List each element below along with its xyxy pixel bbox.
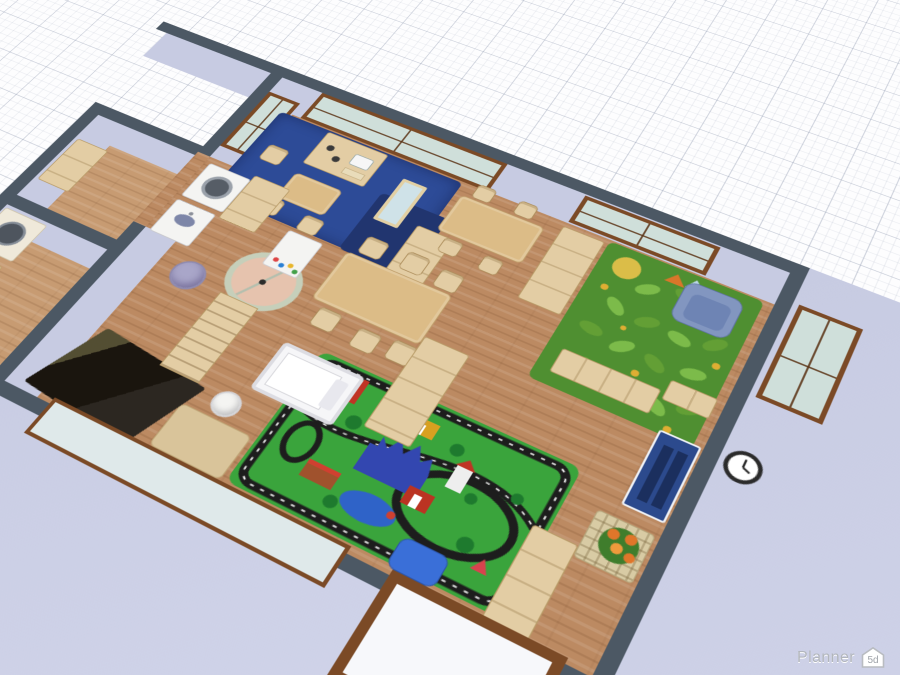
planner5d-logo-icon: 5d bbox=[860, 646, 886, 669]
stove-burner bbox=[325, 144, 336, 152]
watermark-brand-text: Planner bbox=[797, 649, 855, 667]
stove-burner bbox=[330, 155, 341, 163]
washer-drum bbox=[195, 173, 239, 204]
annex-sink-basin bbox=[0, 217, 33, 250]
paint-dot-red bbox=[272, 257, 280, 263]
planner5d-watermark: Planner 5d bbox=[797, 646, 886, 669]
paint-dot-yellow bbox=[287, 263, 295, 269]
ground-grid bbox=[0, 0, 900, 675]
building bbox=[5, 78, 790, 675]
watermark-badge-text: 5d bbox=[867, 655, 878, 666]
sink-basin bbox=[171, 212, 198, 230]
paint-dot-green bbox=[291, 269, 299, 275]
planner-3d-viewport: Planner 5d bbox=[0, 0, 900, 675]
paint-dot-blue bbox=[277, 262, 285, 268]
kitchen-sink bbox=[348, 154, 375, 172]
